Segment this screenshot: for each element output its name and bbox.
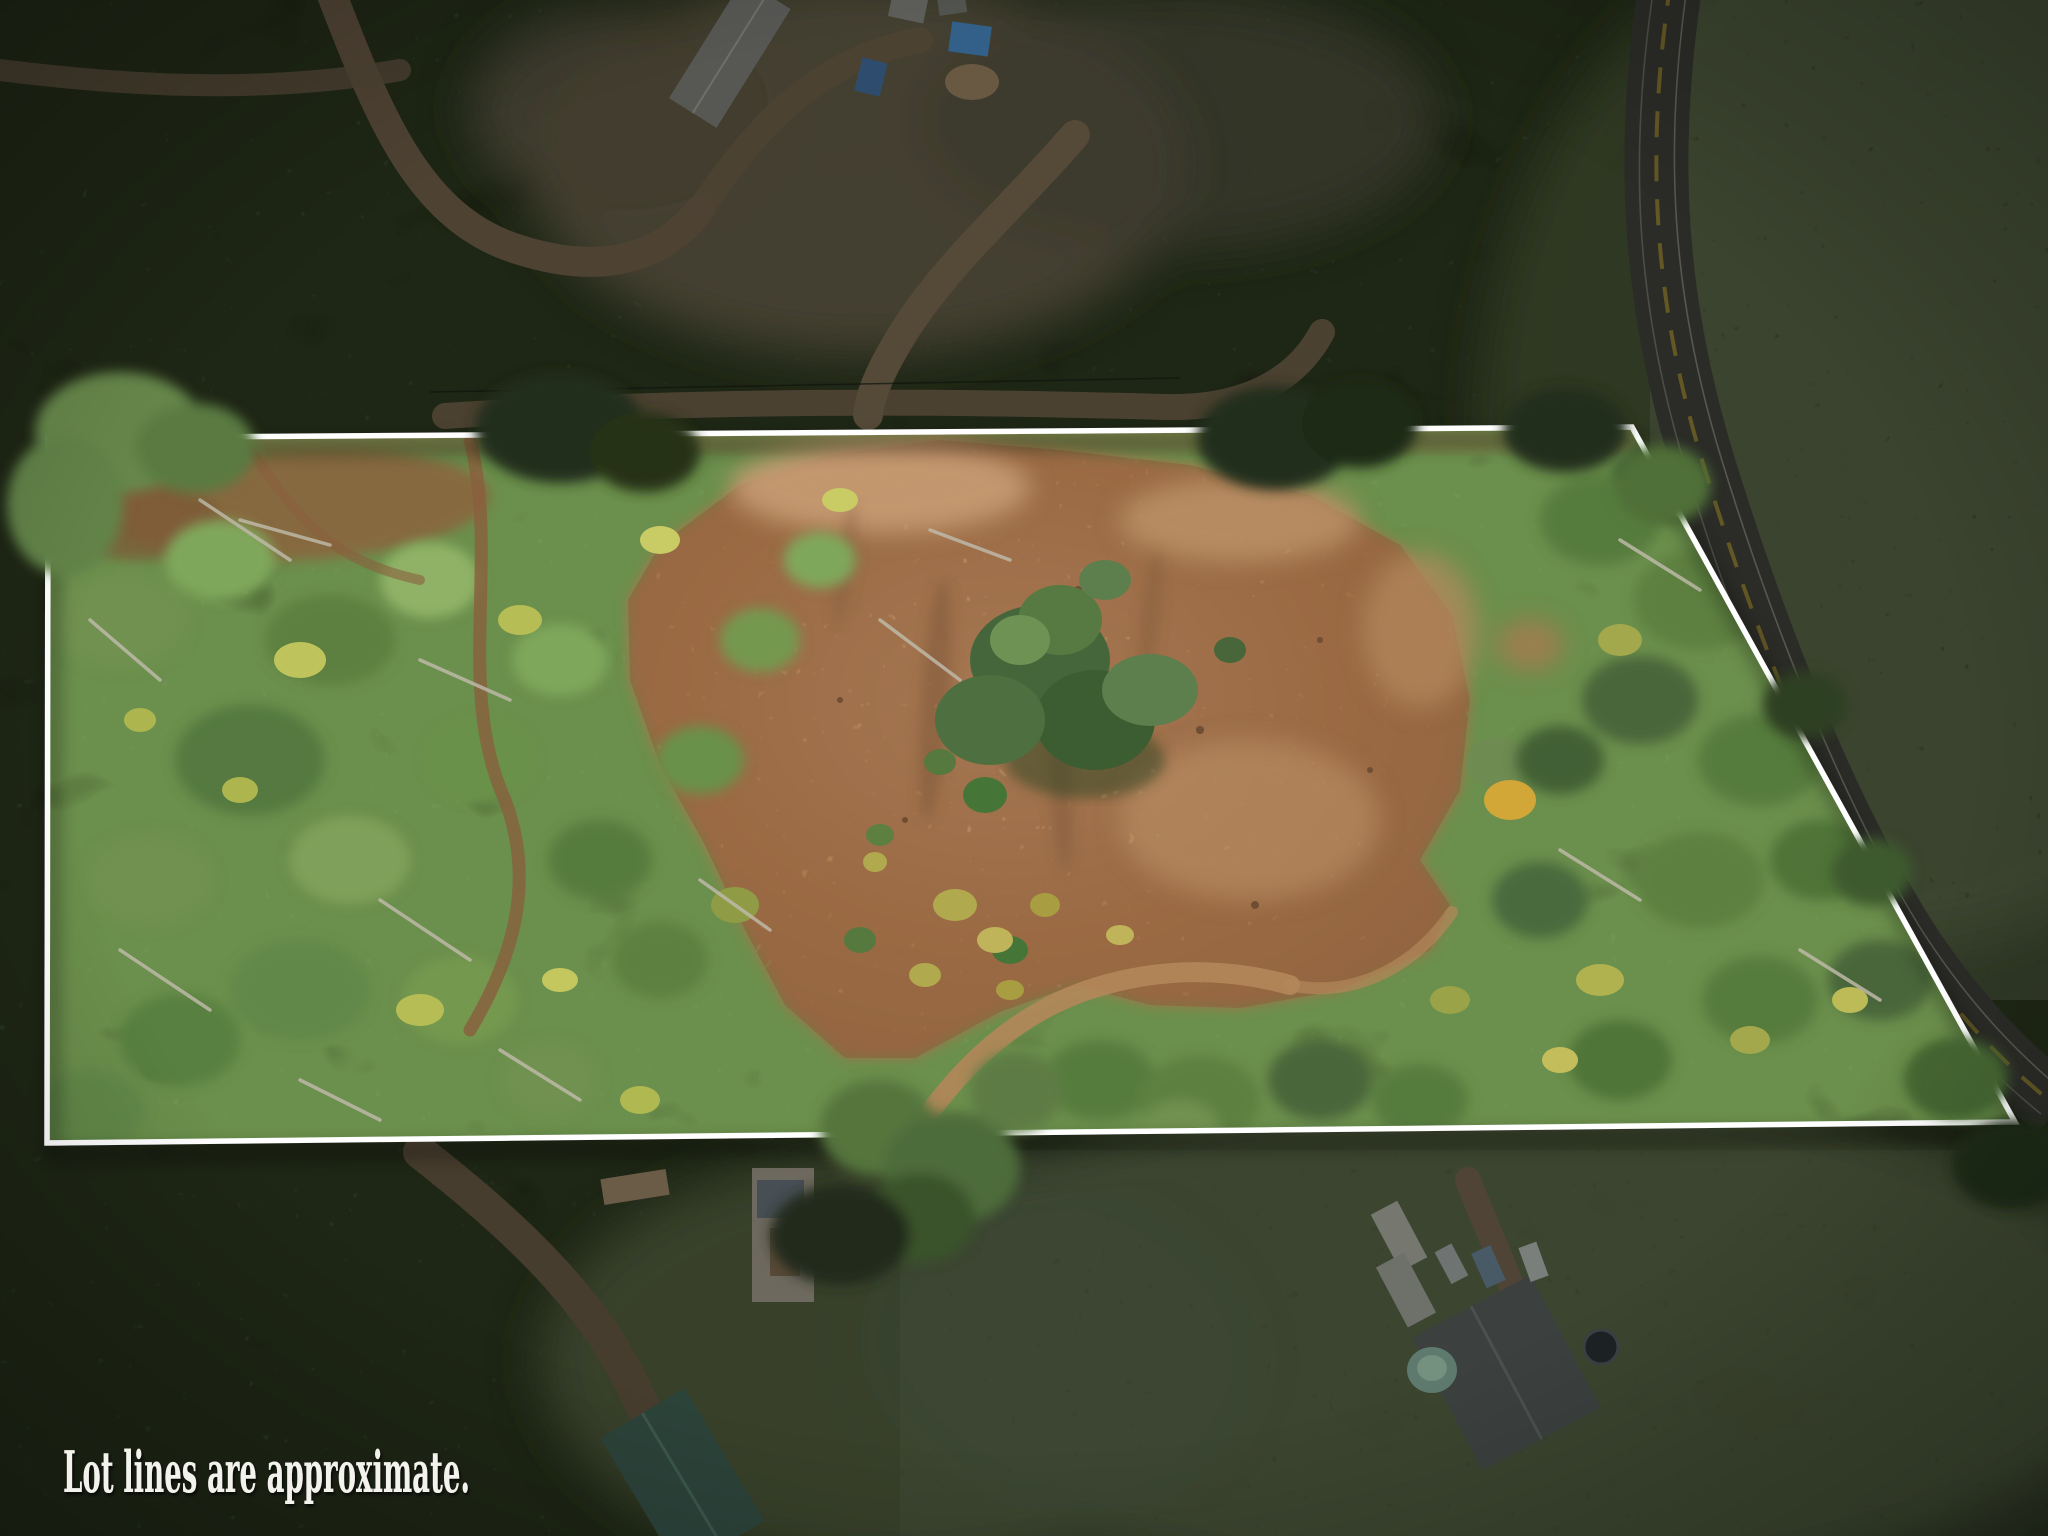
aerial-photo-stage: Lot lines are approximate. <box>0 0 2048 1536</box>
aerial-photo: Lot lines are approximate. <box>0 0 2048 1536</box>
caption-text: Lot lines are approximate. <box>63 1439 470 1506</box>
vignette <box>0 0 2048 1536</box>
